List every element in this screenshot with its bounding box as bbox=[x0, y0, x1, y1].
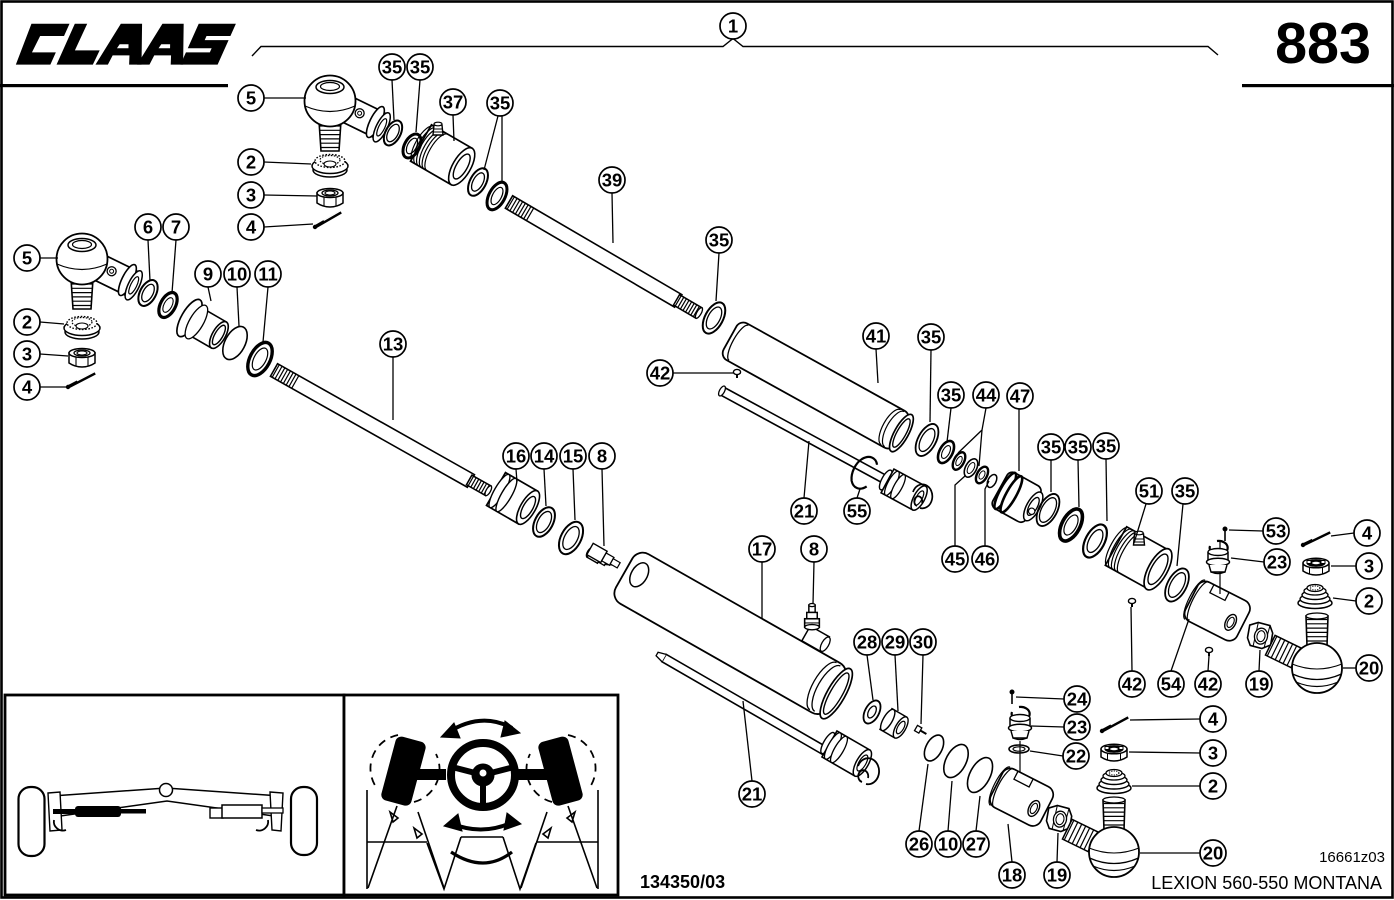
svg-text:44: 44 bbox=[976, 385, 997, 406]
svg-text:29: 29 bbox=[885, 632, 906, 653]
svg-text:2: 2 bbox=[246, 152, 256, 173]
svg-text:8: 8 bbox=[809, 539, 819, 560]
svg-text:16: 16 bbox=[506, 446, 527, 467]
svg-text:15: 15 bbox=[563, 446, 584, 467]
svg-text:45: 45 bbox=[945, 549, 966, 570]
svg-text:6: 6 bbox=[143, 217, 153, 238]
svg-text:27: 27 bbox=[966, 834, 987, 855]
svg-text:35: 35 bbox=[941, 385, 962, 406]
svg-text:41: 41 bbox=[866, 326, 887, 347]
svg-text:20: 20 bbox=[1359, 658, 1380, 679]
svg-text:35: 35 bbox=[490, 93, 511, 114]
svg-text:46: 46 bbox=[975, 549, 996, 570]
svg-text:35: 35 bbox=[1096, 436, 1117, 457]
svg-text:26: 26 bbox=[909, 834, 930, 855]
svg-text:2: 2 bbox=[1364, 591, 1374, 612]
svg-text:19: 19 bbox=[1047, 865, 1068, 886]
svg-text:30: 30 bbox=[913, 632, 934, 653]
svg-text:1: 1 bbox=[728, 16, 738, 37]
svg-text:10: 10 bbox=[227, 264, 248, 285]
svg-text:4: 4 bbox=[1362, 523, 1373, 544]
svg-text:13: 13 bbox=[383, 334, 404, 355]
svg-text:4: 4 bbox=[1208, 709, 1219, 730]
svg-text:8: 8 bbox=[597, 446, 607, 467]
svg-text:20: 20 bbox=[1203, 843, 1224, 864]
svg-text:42: 42 bbox=[650, 363, 671, 384]
svg-text:51: 51 bbox=[1139, 481, 1160, 502]
svg-text:14: 14 bbox=[534, 446, 555, 467]
svg-text:3: 3 bbox=[1208, 743, 1218, 764]
svg-text:24: 24 bbox=[1067, 689, 1088, 710]
svg-text:4: 4 bbox=[22, 377, 33, 398]
svg-text:35: 35 bbox=[709, 230, 730, 251]
svg-text:35: 35 bbox=[1175, 481, 1196, 502]
svg-text:3: 3 bbox=[1364, 556, 1374, 577]
svg-text:53: 53 bbox=[1266, 521, 1287, 542]
svg-text:47: 47 bbox=[1010, 386, 1031, 407]
svg-text:16661z03: 16661z03 bbox=[1319, 849, 1385, 866]
svg-text:11: 11 bbox=[258, 264, 278, 285]
svg-text:35: 35 bbox=[382, 57, 403, 78]
svg-text:134350/03: 134350/03 bbox=[640, 872, 725, 892]
svg-text:18: 18 bbox=[1002, 865, 1023, 886]
svg-text:35: 35 bbox=[1068, 437, 1089, 458]
svg-text:35: 35 bbox=[921, 327, 942, 348]
svg-text:28: 28 bbox=[857, 632, 878, 653]
svg-text:7: 7 bbox=[171, 217, 181, 238]
svg-text:23: 23 bbox=[1267, 552, 1288, 573]
svg-text:2: 2 bbox=[22, 312, 32, 333]
svg-text:9: 9 bbox=[203, 264, 213, 285]
svg-text:3: 3 bbox=[246, 185, 256, 206]
svg-text:35: 35 bbox=[1041, 437, 1062, 458]
svg-text:LEXION 560-550 MONTANA: LEXION 560-550 MONTANA bbox=[1151, 873, 1382, 893]
svg-text:21: 21 bbox=[742, 784, 763, 805]
svg-text:37: 37 bbox=[443, 92, 464, 113]
svg-text:883: 883 bbox=[1275, 12, 1371, 76]
svg-text:54: 54 bbox=[1161, 674, 1182, 695]
svg-text:3: 3 bbox=[22, 344, 32, 365]
svg-text:19: 19 bbox=[1249, 674, 1270, 695]
svg-text:2: 2 bbox=[1208, 776, 1218, 797]
svg-text:22: 22 bbox=[1066, 746, 1087, 767]
svg-text:23: 23 bbox=[1067, 717, 1088, 738]
svg-text:39: 39 bbox=[602, 170, 623, 191]
svg-text:10: 10 bbox=[938, 834, 959, 855]
svg-text:21: 21 bbox=[794, 501, 815, 522]
svg-text:35: 35 bbox=[410, 57, 431, 78]
svg-text:42: 42 bbox=[1198, 674, 1219, 695]
svg-text:55: 55 bbox=[847, 501, 868, 522]
svg-text:4: 4 bbox=[246, 217, 257, 238]
svg-text:5: 5 bbox=[246, 88, 256, 109]
svg-text:17: 17 bbox=[752, 539, 773, 560]
svg-text:42: 42 bbox=[1122, 674, 1143, 695]
svg-text:5: 5 bbox=[22, 248, 32, 269]
